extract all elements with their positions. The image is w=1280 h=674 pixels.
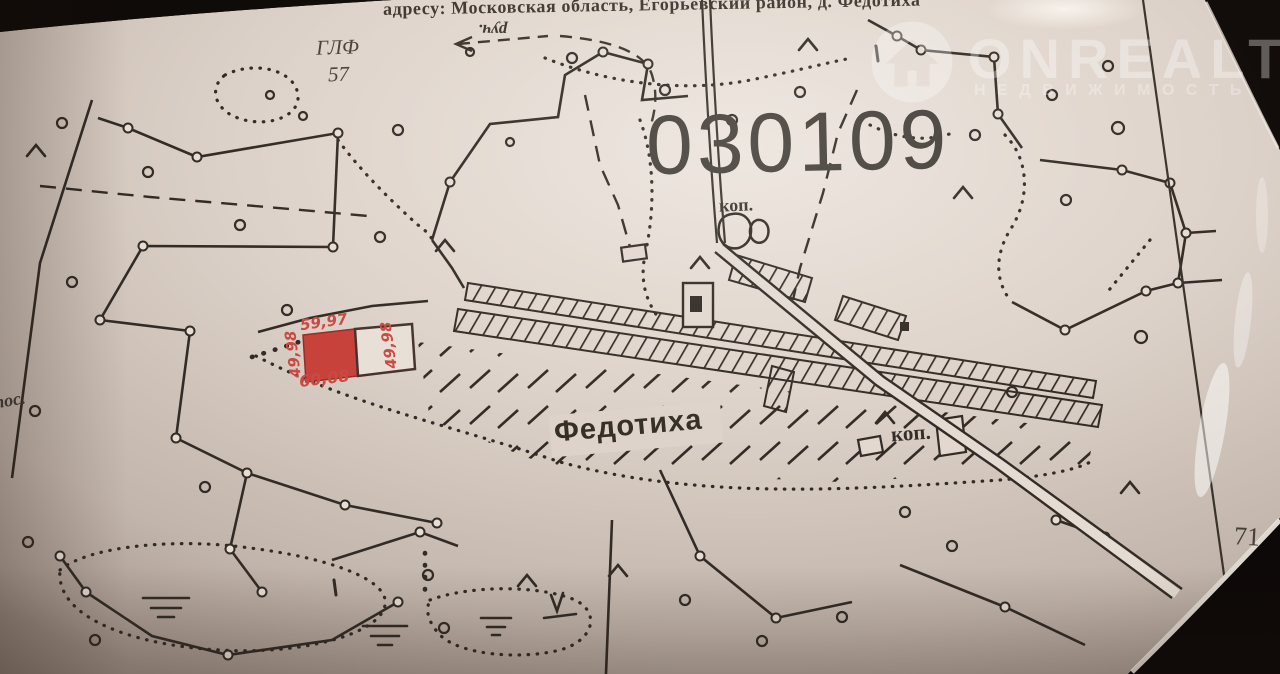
plot-adjacent-part — [355, 324, 415, 376]
map-linework — [0, 0, 1280, 674]
plot-sold-part — [303, 329, 358, 382]
map-photo: адресу: Московская область, Егорьевский … — [0, 0, 1280, 674]
